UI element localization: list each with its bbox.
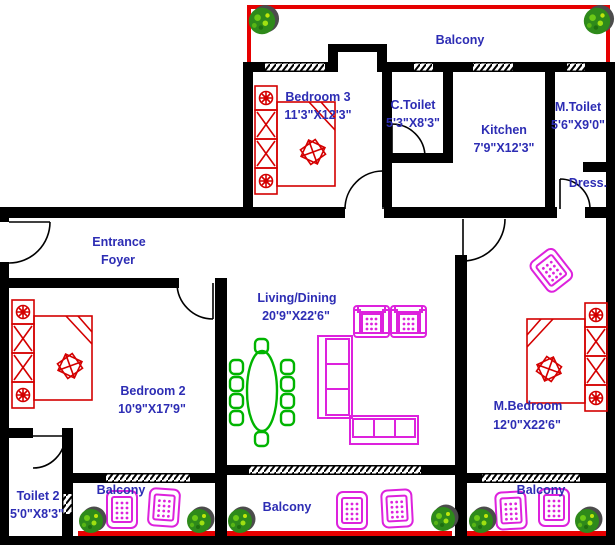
plant-icon: [469, 507, 497, 534]
floor-plan-drawing: Balcony Bedroom 3 11'3"X12'3" C.Toilet 5…: [0, 0, 615, 545]
room-labels: Balcony Bedroom 3 11'3"X12'3" C.Toilet 5…: [10, 33, 607, 521]
room-label-bedroom3: Bedroom 3: [285, 90, 350, 104]
dining-chair-icon: [230, 394, 243, 408]
plant-icon: [187, 507, 215, 534]
balcony-chair-icon: [495, 491, 527, 530]
plants: [79, 5, 614, 533]
armchair-icon: [391, 306, 426, 337]
room-label-balcony-bl: Balcony: [97, 483, 146, 497]
room-dims-living-dining: 20'9"X22'6": [262, 309, 330, 323]
sofa-icon: [318, 336, 352, 418]
room-label-entrance: Entrance: [92, 235, 146, 249]
balcony-chair-icon: [381, 489, 413, 528]
dining-set: [230, 339, 294, 446]
balcony-chairs: [107, 488, 569, 530]
entrance-door-arc: [9, 222, 50, 263]
sofa-icon: [350, 416, 418, 444]
room-label-balcony-br: Balcony: [517, 483, 566, 497]
plant-icon: [249, 5, 279, 34]
balcony-railing: [78, 5, 610, 536]
bed-icon: [12, 300, 92, 408]
dining-chair-icon: [230, 377, 243, 391]
dining-chair-icon: [281, 394, 294, 408]
armchair-icon: [354, 306, 389, 337]
plant-icon: [575, 507, 603, 534]
bedroom3-door-arc: [345, 171, 383, 209]
toilet2-door-arc: [33, 436, 65, 468]
dining-chair-icon: [281, 411, 294, 425]
dining-chair-icon: [281, 360, 294, 374]
balcony-chair-icon: [148, 488, 181, 527]
dining-chair-icon: [230, 411, 243, 425]
bed-icon: [527, 303, 607, 411]
room-label-mtoilet: M.Toilet: [555, 100, 602, 114]
room-dims-mtoilet: 5'6"X9'0": [551, 118, 605, 132]
room-dims-bedroom3: 11'3"X12'3": [284, 108, 351, 122]
bedroom2-door-arc: [177, 283, 213, 319]
room-dims-toilet2: 5'0"X8'3": [10, 507, 64, 521]
room-dims-ctoilet: 5'3"X8'3": [386, 116, 440, 130]
room-label-ctoilet: C.Toilet: [391, 98, 437, 112]
room-label-balcony-bm: Balcony: [263, 500, 312, 514]
balcony-chair-icon: [337, 492, 367, 529]
room-dims-kitchen: 7'9"X12'3": [474, 141, 535, 155]
dining-chair-icon: [255, 432, 268, 446]
room-label-kitchen: Kitchen: [481, 123, 527, 137]
room-dims-mbedroom: 12'0"X22'6": [493, 418, 561, 432]
room-label-balcony-top: Balcony: [436, 33, 485, 47]
floor-plan: Balcony Bedroom 3 11'3"X12'3" C.Toilet 5…: [0, 0, 615, 545]
dining-chair-icon: [281, 377, 294, 391]
room-label-bedroom2: Bedroom 2: [120, 384, 185, 398]
room-label-foyer: Foyer: [101, 253, 135, 267]
room-dims-bedroom2: 10'9"X17'9": [118, 402, 186, 416]
mbedroom-door-arc: [463, 219, 505, 261]
armchair-icon: [528, 247, 574, 295]
room-label-living-dining: Living/Dining: [257, 291, 336, 305]
dining-table-icon: [247, 351, 277, 431]
room-label-toilet2: Toilet 2: [17, 489, 60, 503]
dining-chair-icon: [230, 360, 243, 374]
room-label-dress: Dress.: [569, 176, 607, 190]
room-label-mbedroom: M.Bedroom: [494, 399, 563, 413]
plant-icon: [228, 507, 256, 534]
plant-icon: [79, 507, 107, 534]
sofa-set: [318, 306, 426, 444]
plant-icon: [431, 505, 459, 532]
